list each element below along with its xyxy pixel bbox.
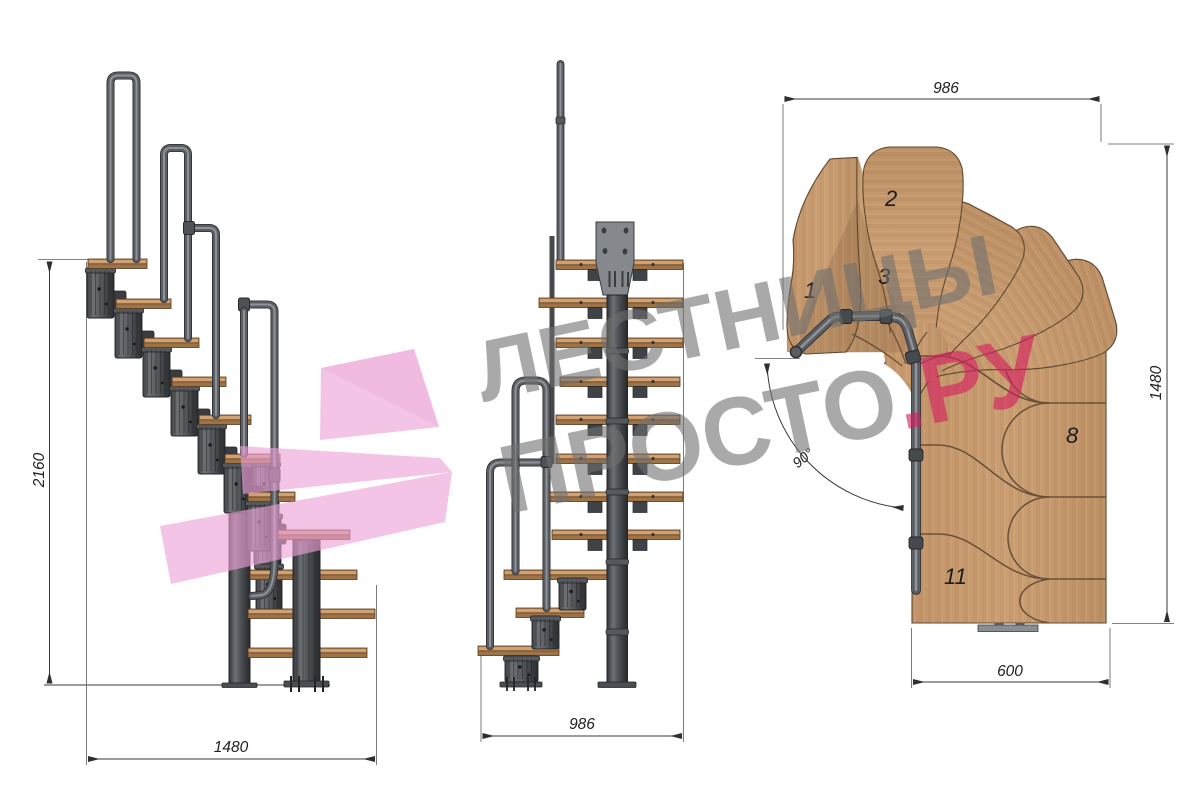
svg-text:986: 986 [569, 716, 595, 733]
svg-text:8: 8 [1066, 423, 1079, 448]
svg-text:2160: 2160 [31, 452, 48, 488]
svg-text:986: 986 [933, 80, 959, 97]
svg-text:1480: 1480 [214, 739, 249, 756]
svg-text:2: 2 [884, 186, 897, 211]
svg-text:11: 11 [944, 564, 967, 589]
svg-text:600: 600 [997, 663, 1023, 680]
svg-text:1480: 1480 [1148, 365, 1165, 400]
